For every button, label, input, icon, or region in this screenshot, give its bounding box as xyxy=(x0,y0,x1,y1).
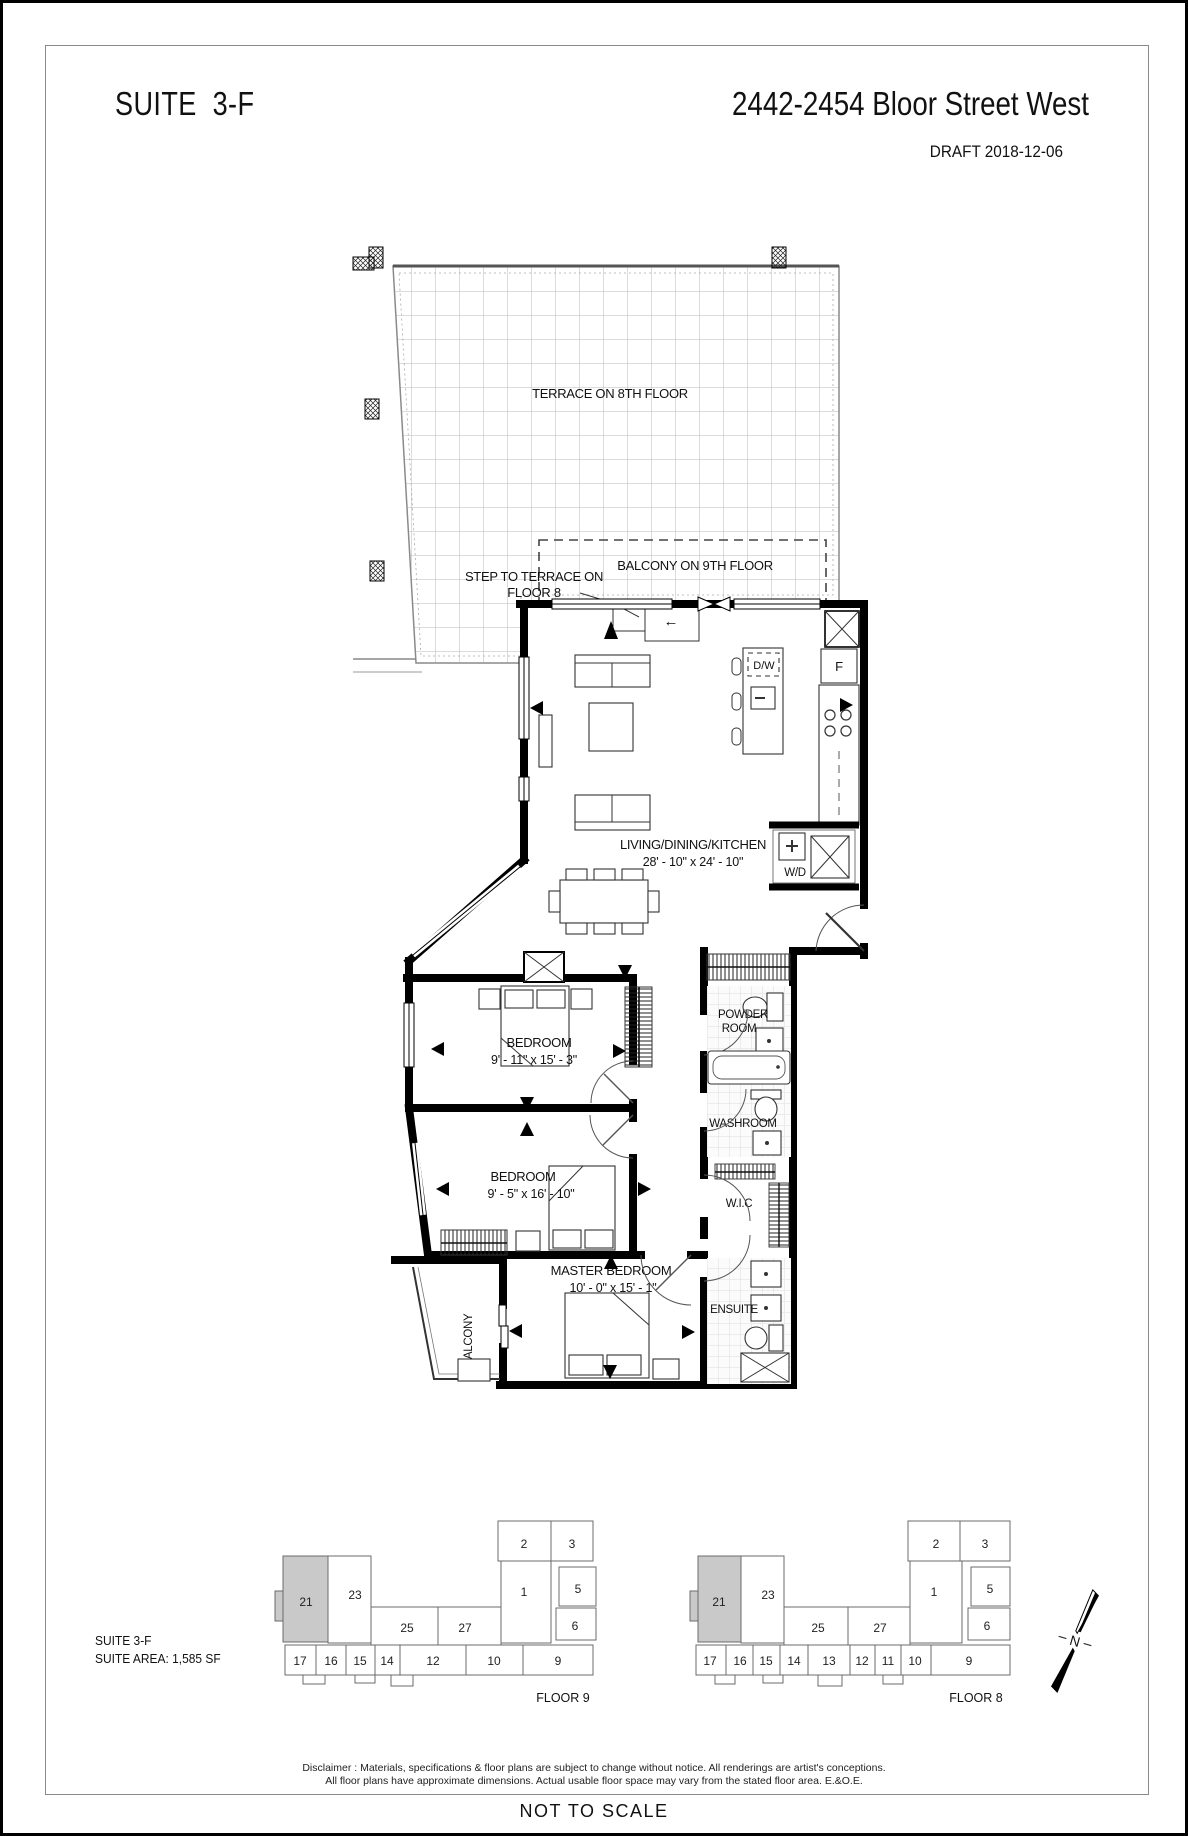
entry-door xyxy=(816,905,864,951)
fridge-label: F xyxy=(835,659,843,674)
svg-text:13: 13 xyxy=(822,1654,836,1668)
washer-dryer-label: W/D xyxy=(784,867,805,879)
step-label-1: STEP TO TERRACE ON xyxy=(465,569,603,584)
svg-text:5: 5 xyxy=(575,1582,582,1596)
svg-text:12: 12 xyxy=(855,1654,869,1668)
floor8-label: FLOOR 8 xyxy=(949,1691,1003,1705)
svg-text:5: 5 xyxy=(987,1582,994,1596)
bedroom1-label: BEDROOM xyxy=(506,1035,571,1050)
svg-text:17: 17 xyxy=(293,1654,307,1668)
svg-text:16: 16 xyxy=(324,1654,338,1668)
svg-text:27: 27 xyxy=(873,1621,887,1635)
svg-text:9: 9 xyxy=(555,1654,562,1668)
suite-summary-area: SUITE AREA: 1,585 SF xyxy=(95,1651,221,1666)
svg-text:25: 25 xyxy=(811,1621,825,1635)
balcony-9th-label: BALCONY ON 9TH FLOOR xyxy=(617,558,773,573)
keyplan-floor9: 21 23 25 27 1 2 3 5 6 17 16 15 14 12 10 … xyxy=(275,1521,596,1705)
kitchen: F D/W xyxy=(732,611,859,825)
svg-text:17: 17 xyxy=(703,1654,717,1668)
svg-text:10: 10 xyxy=(487,1654,501,1668)
powder-room-label-2: ROOM xyxy=(722,1023,757,1035)
svg-text:2: 2 xyxy=(933,1537,940,1551)
svg-text:23: 23 xyxy=(761,1588,775,1602)
bedroom2-dims: 9' - 5" x 16' - 10" xyxy=(488,1187,575,1201)
balcony-label: BALCONY xyxy=(463,1313,475,1366)
ensuite-label: ENSUITE xyxy=(710,1304,758,1316)
bedroom1-dims: 9' - 11" x 15' - 3" xyxy=(491,1053,577,1067)
svg-text:1: 1 xyxy=(931,1585,938,1599)
bedroom1: BEDROOM 9' - 11" x 15' - 3" xyxy=(479,986,652,1103)
svg-text:2: 2 xyxy=(521,1537,528,1551)
disclaimer-line2: All floor plans have approximate dimensi… xyxy=(3,1775,1185,1787)
terrace-label: TERRACE ON 8TH FLOOR xyxy=(532,386,688,401)
svg-text:21: 21 xyxy=(299,1595,313,1609)
stools xyxy=(732,658,741,745)
suite-summary-name: SUITE 3-F xyxy=(95,1633,151,1648)
step-label-2: FLOOR 8 xyxy=(507,585,561,600)
svg-text:12: 12 xyxy=(426,1654,440,1668)
svg-text:1: 1 xyxy=(521,1585,528,1599)
svg-text:15: 15 xyxy=(759,1654,773,1668)
master-bedroom: MASTER BEDROOM 10' - 0" x 15' - 1" xyxy=(458,1255,691,1381)
step-marker-icon xyxy=(604,621,618,639)
svg-text:14: 14 xyxy=(380,1654,394,1668)
ldk-dims: 28' - 10" x 24' - 10" xyxy=(643,855,743,869)
svg-text:16: 16 xyxy=(733,1654,747,1668)
dishwasher-label: D/W xyxy=(753,660,775,672)
svg-text:9: 9 xyxy=(966,1654,973,1668)
svg-text:6: 6 xyxy=(572,1619,579,1633)
laundry-closet: W/D xyxy=(769,825,859,887)
master-dims: 10' - 0" x 15' - 1" xyxy=(570,1281,657,1295)
floor9-label: FLOOR 9 xyxy=(536,1691,590,1705)
bedroom2: BEDROOM 9' - 5" x 16' - 10" xyxy=(441,1115,633,1255)
svg-text:3: 3 xyxy=(569,1537,576,1551)
svg-text:10: 10 xyxy=(908,1654,922,1668)
svg-text:27: 27 xyxy=(458,1621,472,1635)
ldk-label: LIVING/DINING/KITCHEN xyxy=(620,837,766,852)
not-to-scale-label: NOT TO SCALE xyxy=(3,1801,1185,1822)
svg-text:15: 15 xyxy=(353,1654,367,1668)
svg-text:3: 3 xyxy=(982,1537,989,1551)
step-arrow-icon: ← xyxy=(664,613,679,630)
svg-text:11: 11 xyxy=(882,1654,895,1668)
wic: W.I.C xyxy=(704,1164,789,1247)
north-arrow-icon: N xyxy=(1044,1584,1106,1697)
disclaimer-line1: Disclaimer : Materials, specifications &… xyxy=(3,1762,1185,1774)
powder-room-label-1: POWDER xyxy=(718,1009,768,1021)
keyplan-floor8: 21 23 25 27 1 2 3 5 6 17 16 15 14 13 12 … xyxy=(690,1521,1010,1705)
svg-text:N: N xyxy=(1068,1632,1082,1650)
bedroom2-label: BEDROOM xyxy=(490,1169,555,1184)
svg-text:14: 14 xyxy=(787,1654,801,1668)
svg-text:6: 6 xyxy=(984,1619,991,1633)
floorplan-drawing: TERRACE ON 8TH FLOOR BALCONY ON 9TH FLOO… xyxy=(3,3,1188,1836)
suite-summary: SUITE 3-FSUITE AREA: 1,585 SF xyxy=(95,1632,221,1668)
svg-text:23: 23 xyxy=(348,1588,362,1602)
floorplan-sheet: SUITE 3-F 2442-2454 Bloor Street West DR… xyxy=(0,0,1188,1836)
dining-table xyxy=(549,869,659,934)
svg-text:21: 21 xyxy=(712,1595,726,1609)
svg-text:25: 25 xyxy=(400,1621,414,1635)
bath-column: POWDER ROOM WASHROOM xyxy=(704,954,791,1384)
